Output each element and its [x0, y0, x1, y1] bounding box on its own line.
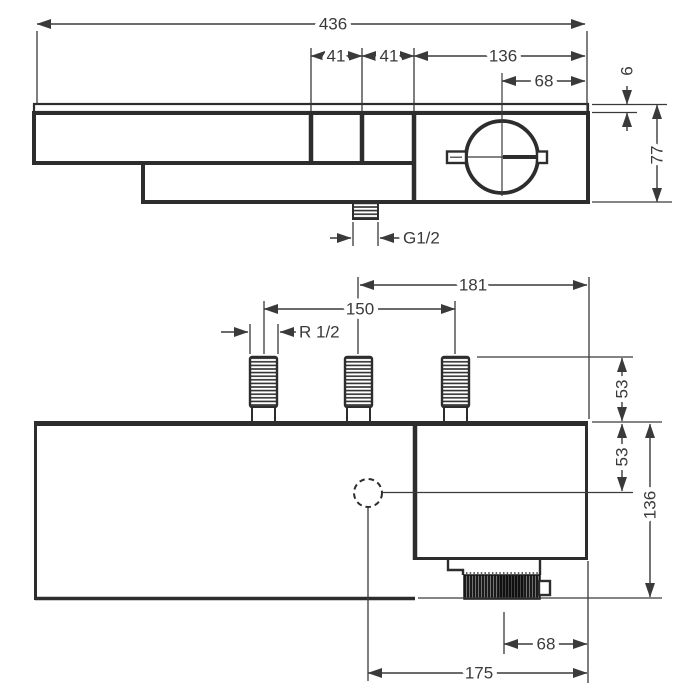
top-view: 436 41 41 136 68 6 77 G1/2 — [34, 15, 672, 248]
inlet-pipe-thread — [345, 357, 372, 407]
dim-button1-width: 41 — [327, 47, 346, 66]
front-view: 181 150 R 1/2 53 53 136 68 175 — [34, 276, 662, 684]
dim-outlet-span: 175 — [465, 664, 493, 683]
inlet-pipe-shank — [444, 407, 467, 422]
body-left-fill — [36, 424, 415, 599]
handle-right-tab — [537, 152, 547, 164]
dim-inlet-thread: R 1/2 — [299, 323, 340, 342]
dim-handle-span: 181 — [459, 276, 487, 295]
dim-inlet-spacing: 150 — [346, 300, 374, 319]
technical-drawing-page: 436 41 41 136 68 6 77 G1/2 — [0, 0, 700, 700]
dim-thermostat-width: 136 — [489, 47, 517, 66]
inlet-pipe-shank — [347, 407, 370, 422]
dim-outlet-drop: 53 — [613, 448, 632, 467]
dim-handle-center: 68 — [535, 72, 554, 91]
top-view-body — [34, 104, 588, 219]
outlet-connector-thread — [353, 203, 378, 219]
dim-outlet-thread: G1/2 — [403, 229, 440, 248]
dim-knob-center: 68 — [537, 635, 556, 654]
inlet-pipe-thread — [250, 357, 277, 407]
dim-inlet-height: 53 — [613, 380, 632, 399]
inlet-pipe-shank — [252, 407, 275, 422]
dim-total-width: 436 — [319, 15, 347, 34]
front-view-body — [34, 421, 588, 600]
dim-shelf-thickness: 6 — [618, 66, 637, 75]
technical-drawing: 436 41 41 136 68 6 77 G1/2 — [0, 0, 700, 700]
inlet-pipes — [250, 357, 469, 422]
body-right-fill — [415, 424, 587, 559]
dim-body-height: 77 — [648, 146, 667, 165]
volume-knob-shading — [498, 576, 524, 598]
knob-right-tab — [539, 581, 550, 595]
dim-button2-width: 41 — [380, 47, 399, 66]
inlet-pipe-thread — [442, 357, 469, 407]
dim-total-height: 136 — [641, 491, 660, 519]
